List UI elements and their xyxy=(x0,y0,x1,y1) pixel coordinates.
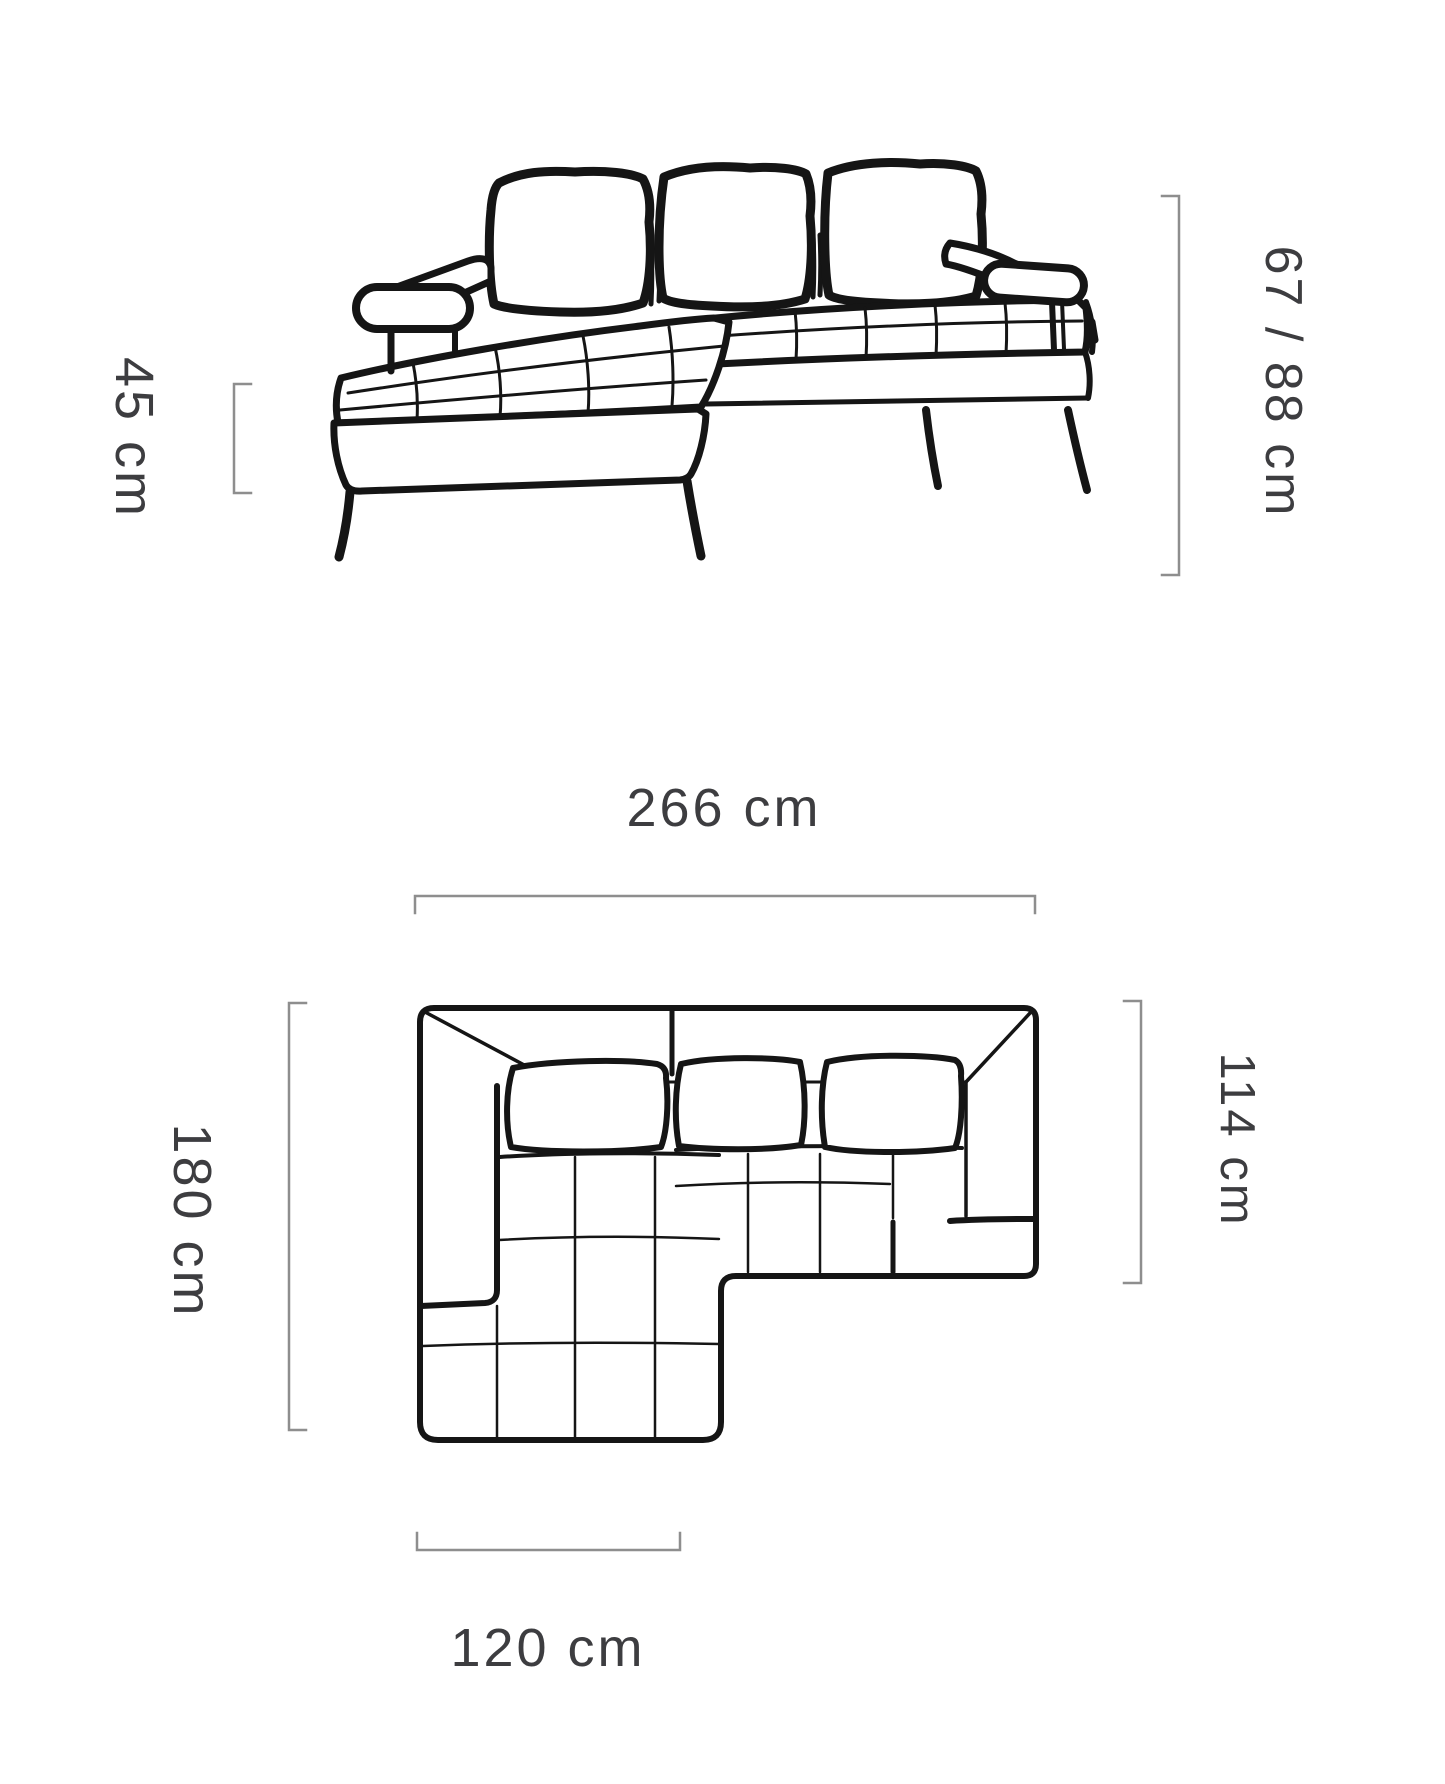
left-armrest-pad xyxy=(356,287,470,329)
dimension-diagram: 45 cm 67 / 88 cm 266 cm 180 cm 114 cm 12… xyxy=(0,0,1445,1784)
plan-pillow-right xyxy=(822,1056,962,1152)
measure-bracket-back-height xyxy=(1162,196,1179,575)
dimension-label-chaise-width: 120 cm xyxy=(450,1617,645,1679)
chaise-right-leg xyxy=(687,481,701,556)
measure-bracket-chaise-width xyxy=(417,1533,680,1550)
front-elevation-view xyxy=(334,163,1095,557)
dimension-label-body-depth: 114 cm xyxy=(1209,1052,1265,1227)
sofa-line-art xyxy=(0,0,1445,1784)
dimension-label-total-depth: 180 cm xyxy=(161,1123,223,1318)
main-base xyxy=(706,352,1090,490)
back-pillow-left xyxy=(489,171,650,312)
main-left-leg xyxy=(926,410,938,486)
dimension-label-seat-height: 45 cm xyxy=(103,357,165,519)
plan-pillow-middle xyxy=(676,1058,805,1149)
measure-bracket-total-depth xyxy=(289,1003,306,1430)
plan-pillow-left xyxy=(507,1061,667,1152)
measure-bracket-seat-height xyxy=(234,384,251,493)
chaise-left-leg xyxy=(339,492,350,557)
chaise-base xyxy=(334,409,706,557)
measure-bracket-total-width xyxy=(415,896,1035,913)
dimension-label-back-height: 67 / 88 cm xyxy=(1253,246,1313,519)
dimension-label-total-width: 266 cm xyxy=(626,777,821,839)
measure-bracket-body-depth xyxy=(1124,1001,1141,1283)
plan-right-armrest-front xyxy=(950,1219,1034,1221)
back-pillow-right xyxy=(825,163,983,304)
top-plan-view xyxy=(420,1008,1036,1440)
back-pillow-middle xyxy=(659,167,811,307)
right-armrest-pad xyxy=(983,263,1085,304)
main-right-leg xyxy=(1068,410,1087,490)
